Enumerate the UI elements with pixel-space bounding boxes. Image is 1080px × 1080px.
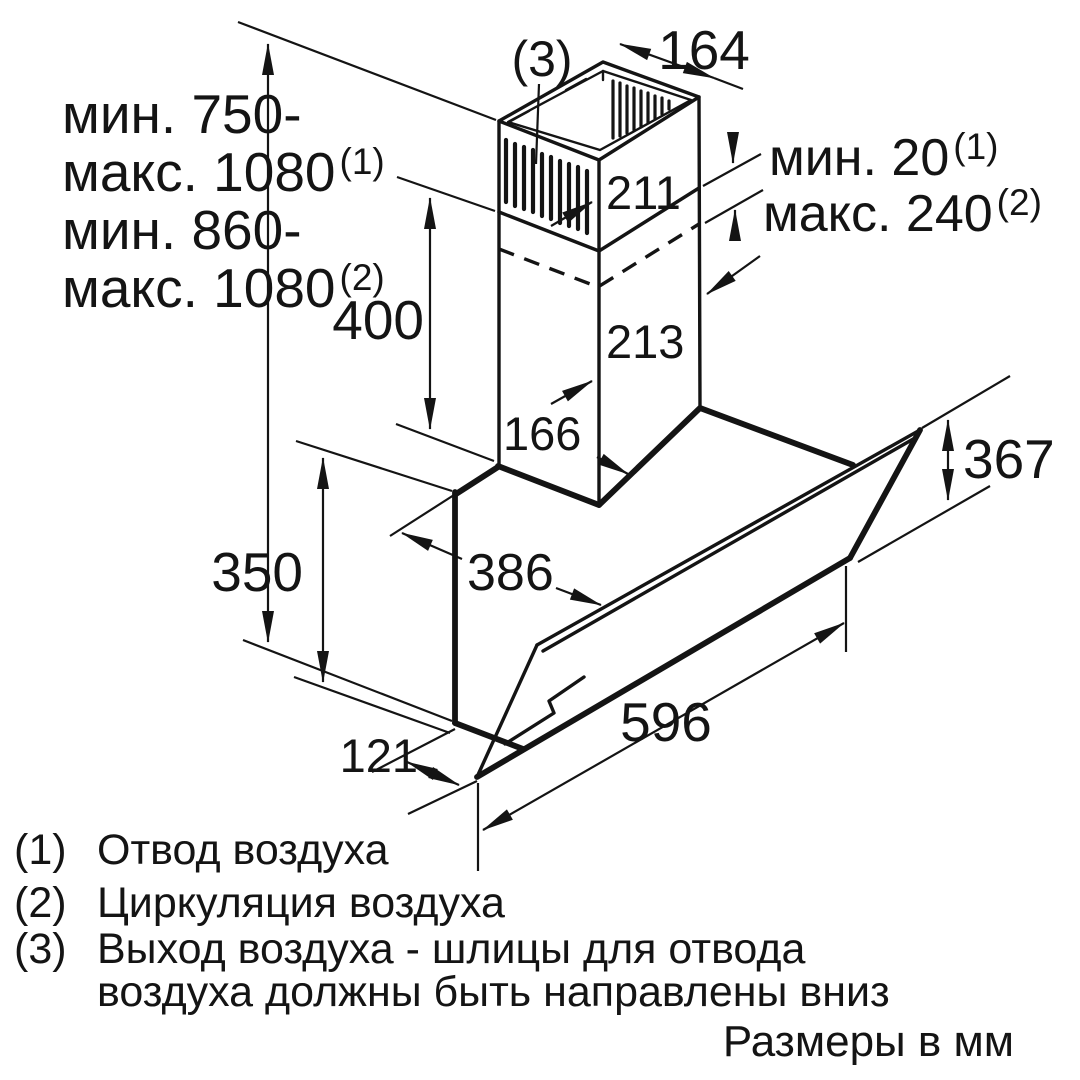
hood-body bbox=[455, 467, 584, 749]
callout-3-leader bbox=[536, 84, 539, 164]
dim-350: 350 bbox=[211, 541, 303, 603]
telescopic-min-text: мин. 20 bbox=[769, 129, 949, 187]
legend-key-2: (2) bbox=[14, 879, 67, 927]
legend-text-3-line2: воздуха должны быть направлены вниз bbox=[97, 968, 890, 1016]
dim-596: 596 bbox=[620, 691, 712, 753]
legend-text-2: Циркуляция воздуха bbox=[97, 879, 505, 927]
wall-note-line1: мин. 750- bbox=[62, 83, 302, 145]
technical-drawing-page: мин. 750- макс. 1080(1) мин. 860- макс. … bbox=[0, 0, 1080, 1080]
dim-400: 400 bbox=[332, 289, 424, 351]
dim-386-arrow-front bbox=[556, 588, 601, 605]
dim-166-leader bbox=[597, 457, 628, 474]
dim-211: 211 bbox=[606, 166, 681, 219]
telescopic-min-label: мин. 20(1) bbox=[769, 126, 998, 187]
dim-213: 213 bbox=[606, 315, 684, 368]
callout-3: (3) bbox=[511, 31, 572, 87]
wall-note-line2-text: макс. 1080 bbox=[62, 141, 336, 203]
legend: (1) Отвод воздуха (2) Циркуляция воздуха… bbox=[14, 826, 1014, 1066]
dim-213-leader bbox=[551, 381, 592, 404]
units-note: Размеры в мм bbox=[723, 1017, 1014, 1066]
wall-note-line3: мин. 860- bbox=[62, 199, 302, 261]
dim-121: 121 bbox=[340, 729, 418, 782]
hood-dimension-diagram: мин. 750- макс. 1080(1) мин. 860- макс. … bbox=[0, 0, 1080, 1080]
dim-367: 367 bbox=[963, 428, 1055, 490]
dim-166: 166 bbox=[503, 407, 581, 460]
legend-text-1: Отвод воздуха bbox=[97, 826, 389, 874]
telescopic-max-label: макс. 240(2) bbox=[763, 182, 1042, 243]
dim-164: 164 bbox=[658, 19, 750, 81]
wall-note-line4-text: макс. 1080 bbox=[62, 257, 336, 319]
telescopic-max-text: макс. 240 bbox=[763, 185, 993, 243]
max240-leader bbox=[707, 256, 760, 294]
legend-text-3: Выход воздуха - шлицы для отвода bbox=[97, 925, 805, 973]
legend-key-3: (3) bbox=[14, 925, 67, 973]
telescopic-max-sup: (2) bbox=[997, 182, 1042, 223]
telescopic-min-sup: (1) bbox=[953, 126, 998, 167]
wall-note-line2: макс. 1080(1) bbox=[62, 141, 385, 203]
legend-key-1: (1) bbox=[14, 826, 67, 874]
dim-386: 386 bbox=[467, 544, 554, 602]
wall-note-line2-sup: (1) bbox=[340, 141, 385, 182]
